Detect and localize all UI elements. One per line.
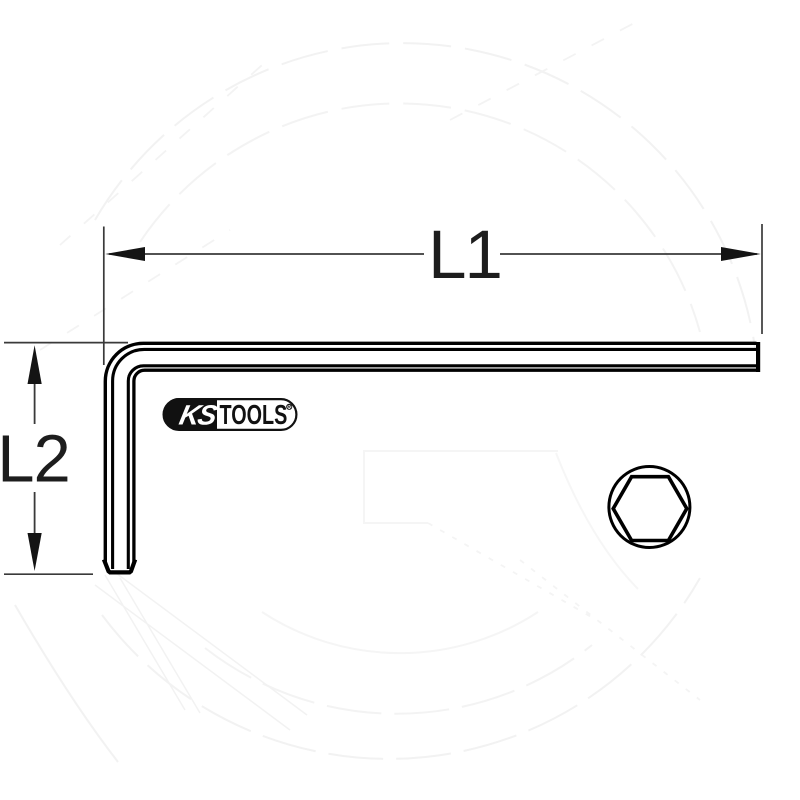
- svg-text:L1: L1: [428, 216, 501, 293]
- svg-text:TOOLS: TOOLS: [220, 400, 288, 431]
- svg-text:R: R: [287, 405, 291, 411]
- svg-text:L2: L2: [0, 421, 70, 496]
